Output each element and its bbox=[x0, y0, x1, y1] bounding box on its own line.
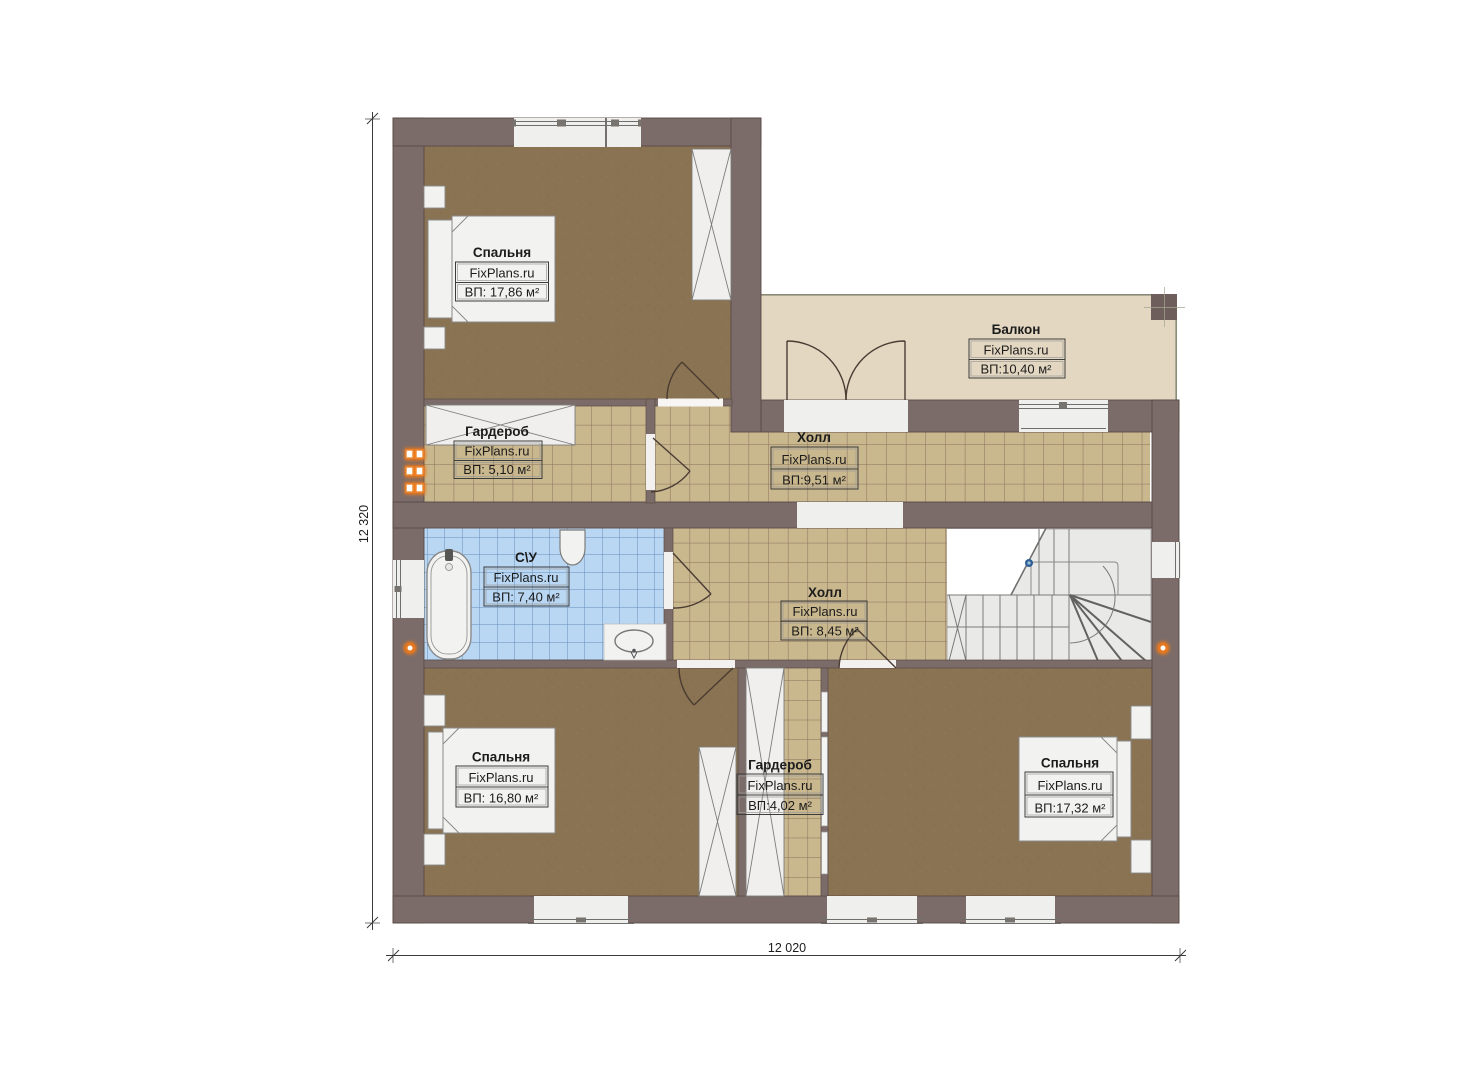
svg-text:Спальня: Спальня bbox=[473, 245, 531, 260]
svg-text:FixPlans.ru: FixPlans.ru bbox=[747, 778, 812, 793]
svg-text:12 020: 12 020 bbox=[768, 941, 806, 955]
svg-text:ВП: 16,80 м²: ВП: 16,80 м² bbox=[464, 791, 539, 806]
svg-text:ВП: 7,40 м²: ВП: 7,40 м² bbox=[492, 590, 560, 605]
svg-text:ВП:10,40 м²: ВП:10,40 м² bbox=[980, 362, 1052, 377]
svg-text:FixPlans.ru: FixPlans.ru bbox=[781, 452, 846, 467]
svg-text:FixPlans.ru: FixPlans.ru bbox=[1037, 778, 1102, 793]
svg-text:FixPlans.ru: FixPlans.ru bbox=[493, 570, 558, 585]
svg-text:Холл: Холл bbox=[808, 585, 842, 600]
svg-text:Холл: Холл bbox=[797, 430, 831, 445]
svg-text:FixPlans.ru: FixPlans.ru bbox=[469, 266, 534, 281]
svg-text:ВП:9,51 м²: ВП:9,51 м² bbox=[782, 473, 846, 488]
svg-text:Гардероб: Гардероб bbox=[748, 758, 812, 773]
svg-text:FixPlans.ru: FixPlans.ru bbox=[792, 604, 857, 619]
svg-text:ВП: 8,45 м²: ВП: 8,45 м² bbox=[791, 624, 859, 639]
svg-text:Балкон: Балкон bbox=[992, 322, 1041, 337]
svg-text:С\У: С\У bbox=[515, 550, 538, 565]
svg-text:ВП: 5,10 м²: ВП: 5,10 м² bbox=[463, 462, 531, 477]
svg-text:ВП:4,02 м²: ВП:4,02 м² bbox=[748, 798, 812, 813]
svg-text:FixPlans.ru: FixPlans.ru bbox=[983, 343, 1048, 358]
svg-text:ВП:17,32 м²: ВП:17,32 м² bbox=[1034, 801, 1106, 816]
svg-text:Спальня: Спальня bbox=[1041, 756, 1099, 771]
svg-text:ВП: 17,86 м²: ВП: 17,86 м² bbox=[465, 285, 540, 300]
svg-text:FixPlans.ru: FixPlans.ru bbox=[468, 770, 533, 785]
svg-text:FixPlans.ru: FixPlans.ru bbox=[464, 444, 529, 459]
svg-text:Спальня: Спальня bbox=[472, 750, 530, 765]
svg-text:12 320: 12 320 bbox=[357, 505, 371, 543]
svg-text:Гардероб: Гардероб bbox=[465, 424, 529, 439]
